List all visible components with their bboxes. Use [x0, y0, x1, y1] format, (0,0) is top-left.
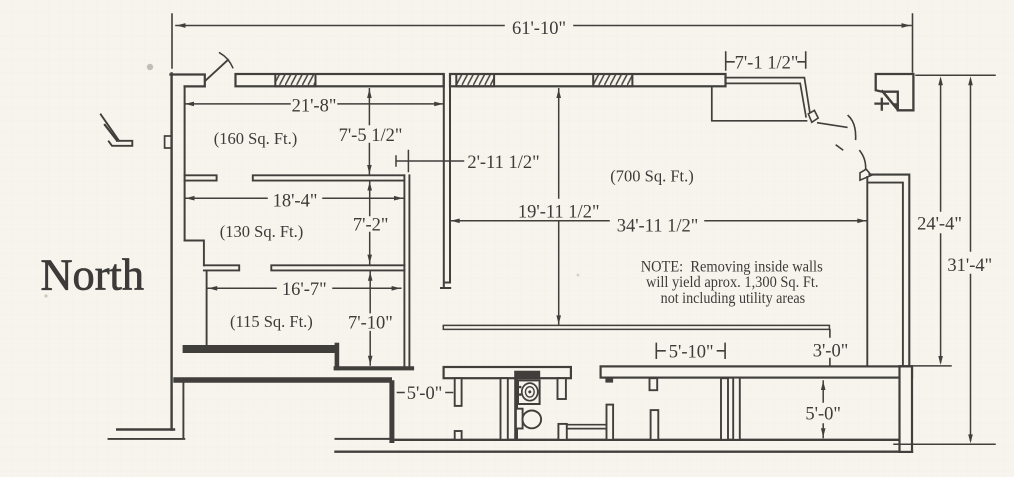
svg-text:24'-4": 24'-4" [917, 215, 962, 235]
svg-text:16'-7": 16'-7" [282, 280, 327, 300]
svg-text:(700 Sq. Ft.): (700 Sq. Ft.) [610, 166, 693, 185]
svg-text:(160 Sq. Ft.): (160 Sq. Ft.) [214, 129, 297, 148]
svg-text:31'-4": 31'-4" [947, 256, 992, 276]
svg-text:7'-10": 7'-10" [348, 314, 393, 334]
svg-text:3'-0": 3'-0" [813, 342, 849, 362]
svg-text:7'-5 1/2": 7'-5 1/2" [339, 126, 403, 146]
svg-text:34'-11 1/2": 34'-11 1/2" [617, 216, 699, 236]
svg-text:19'-11 1/2": 19'-11 1/2" [518, 202, 600, 222]
svg-text:7'-2": 7'-2" [353, 216, 389, 236]
svg-text:5'-0": 5'-0" [407, 384, 443, 404]
svg-text:5'-0": 5'-0" [805, 404, 841, 424]
svg-text:18'-4": 18'-4" [273, 191, 318, 211]
svg-text:7'-1 1/2": 7'-1 1/2" [735, 53, 799, 73]
svg-text:(130 Sq. Ft.): (130 Sq. Ft.) [220, 222, 303, 241]
svg-text:North: North [41, 250, 145, 299]
svg-text:2'-11 1/2": 2'-11 1/2" [467, 153, 539, 173]
svg-text:not including utility areas: not including utility areas [661, 288, 806, 307]
svg-text:61'-10": 61'-10" [512, 19, 566, 39]
svg-text:5'-10": 5'-10" [669, 342, 714, 362]
svg-text:21'-8": 21'-8" [292, 97, 337, 117]
svg-text:(115 Sq. Ft.): (115 Sq. Ft.) [230, 312, 313, 331]
